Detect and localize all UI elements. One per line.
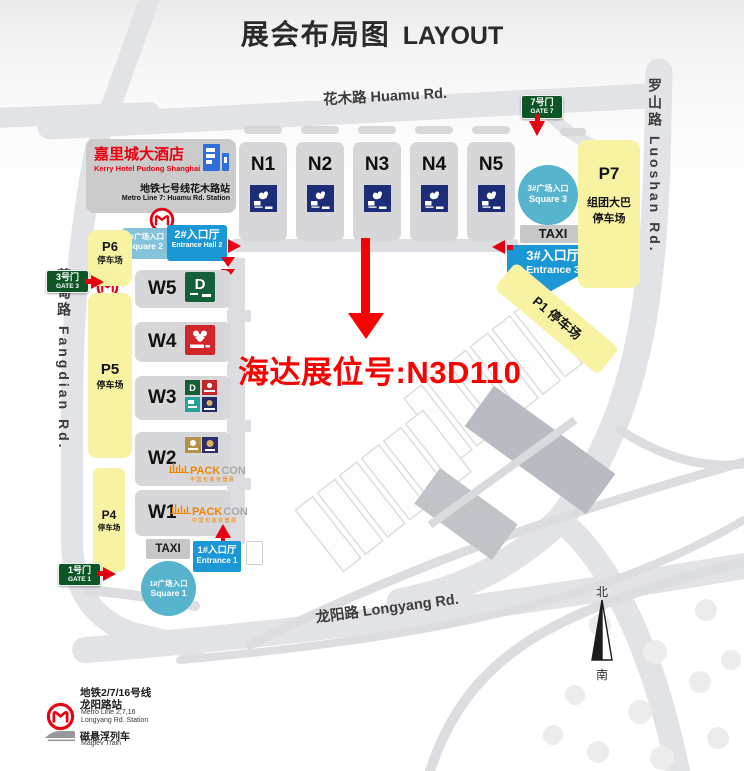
building-icon: [201, 143, 231, 180]
p5-label: P5: [88, 361, 132, 378]
hall-w4-label: W4: [148, 331, 185, 353]
square1-label-en: Square 1: [151, 588, 187, 599]
compass-north-label: 北: [589, 583, 615, 600]
packcon-sub-text: 中国包装容器展: [190, 478, 246, 483]
hall-w3-label: W3: [148, 387, 185, 409]
hotel-card: 嘉里城大酒店 Kerry Hotel Pudong Shanghai 地铁七号线…: [86, 139, 236, 213]
gate-7-arrow-icon: [529, 121, 545, 136]
map-building: [246, 541, 263, 565]
hall-w3: W3 D: [135, 376, 231, 420]
hall-n2-label: N2: [296, 154, 344, 176]
entrance3-arrow-tail: [507, 245, 513, 250]
taxi-north-label: TAXI: [520, 225, 586, 243]
hall-n3: N3: [353, 142, 401, 241]
square1-label-zh: 1#广场入口: [149, 579, 187, 588]
p7-line2: 停车场: [578, 210, 640, 226]
square3-label-en: Square 3: [529, 194, 567, 205]
gate-7-label-zh: 7号门: [522, 98, 562, 108]
gate-3-arrow-icon: [91, 275, 104, 289]
p4-sub: 停车场: [93, 522, 125, 533]
compass-needle-icon: [591, 599, 613, 666]
compass-south-label: 南: [589, 666, 615, 683]
packcon-logo: PACK CON 中国包装容器展: [171, 502, 248, 524]
booth-annotation-arrow-icon: [348, 313, 384, 339]
w4-logo-icon: [185, 325, 215, 360]
gate-7-arrow-tail: [535, 114, 540, 121]
p7-line1: 组团大巴: [578, 194, 640, 210]
packcon-skyline-icon: [169, 461, 189, 477]
booth-annotation-arrow-shaft: [361, 238, 370, 314]
hall-n4: N4: [410, 142, 458, 241]
booth-annotation-text: 海达展位号:N3D110: [238, 347, 521, 392]
hotel-station-zh: 地铁七号线花木路站: [94, 180, 230, 195]
hall-n5-label: N5: [467, 154, 515, 176]
gate-3-label-en: GATE 3: [47, 283, 88, 290]
hall-n5: N5: [467, 142, 515, 241]
road-label-luoshan: 罗山路 Luoshan Rd.: [645, 78, 665, 298]
page-title-en: LAYOUT: [403, 22, 503, 51]
gate-1-sign: 1号门 GATE 1: [58, 563, 101, 586]
w3-logo-grid-icon: D: [185, 380, 217, 417]
expo-logo-icon: [307, 199, 334, 216]
expo-logo-icon: [364, 199, 391, 216]
legend-metro-line-en: Metro Line 2,7,16: [81, 709, 135, 716]
entrance2-arrow-right-icon: [228, 239, 241, 253]
p7-label: P7: [578, 164, 640, 184]
maglev-icon: [44, 729, 76, 748]
packcon-con-text: CON: [221, 466, 245, 477]
entrance-hall-1: 1#入口厅 Entrance 1: [193, 541, 241, 572]
packcon-logo: PACK CON 中国包装容器展: [169, 461, 246, 483]
hall-w4: W4: [135, 322, 231, 362]
hall-n2: N2: [296, 142, 344, 241]
legend-metro-station-en: Longyang Rd. Station: [81, 717, 148, 724]
packcon-pack-text: PACK: [192, 507, 222, 518]
svg-text:D: D: [189, 383, 196, 393]
entrance-hall-2: 2#入口厅 Entrance Hall 2: [167, 225, 227, 261]
hall2-label-zh: 2#入口厅: [167, 229, 227, 242]
road-label-fangdian: 芳甸路 Fangdian Rd.: [54, 268, 74, 588]
gate-1-label-zh: 1号门: [59, 566, 100, 576]
parking-p4: P4 停车场: [93, 468, 125, 572]
entrance-square-1: 1#广场入口 Square 1: [141, 561, 196, 616]
p4-label: P4: [93, 508, 125, 522]
hall-n3-label: N3: [353, 154, 401, 176]
entrance1-arrow-up-icon: [215, 524, 231, 538]
gate-1-arrow-icon: [103, 567, 116, 581]
w2-logo-icons: [185, 437, 246, 458]
svg-text:D: D: [195, 276, 206, 293]
square3-label-zh: 3#广场入口: [528, 184, 569, 194]
gate-1-label-en: GATE 1: [59, 576, 100, 583]
packcon-pack-text: PACK: [190, 466, 220, 477]
layout-map: 展会布局图 LAYOUT 花木路 Huamu Rd. 芳甸路 Fangdian …: [0, 0, 744, 771]
gate-7-sign: 7号门 GATE 7: [521, 95, 563, 119]
packcon-con-text: CON: [223, 507, 247, 518]
packcon-skyline-icon: [171, 502, 191, 518]
p5-sub: 停车场: [88, 378, 132, 391]
hotel-station-en: Metro Line 7: Huamu Rd. Station: [94, 195, 230, 202]
expo-logo-icon: [250, 199, 277, 216]
expo-logo-icon: [478, 199, 505, 216]
page-title-zh: 展会布局图: [241, 13, 391, 53]
hall-w2: W2 PACK CON 中国包装容器展: [135, 432, 231, 486]
hall-w5: W5 D: [135, 270, 231, 308]
hall-n1: N1: [239, 142, 287, 241]
gate-3-sign: 3号门 GATE 3: [46, 270, 89, 293]
legend-maglev-en: Maglev Train: [81, 740, 121, 747]
hall-w5-label: W5: [148, 278, 185, 300]
p6-sub: 停车场: [88, 254, 132, 266]
gate-3-label-zh: 3号门: [47, 273, 88, 283]
p6-label: P6: [88, 239, 132, 254]
hall1-label-en: Entrance 1: [193, 556, 241, 566]
entrance-square-3: 3#广场入口 Square 3: [518, 165, 578, 225]
hall2-label-en: Entrance Hall 2: [167, 242, 227, 250]
gate-7-label-en: GATE 7: [522, 108, 562, 115]
hall-n4-label: N4: [410, 154, 458, 176]
entrance3-arrow-left-icon: [492, 240, 505, 254]
expo-logo-icon: [421, 199, 448, 216]
parking-p7: P7 组团大巴 停车场: [578, 140, 640, 288]
page-title: 展会布局图 LAYOUT: [0, 13, 744, 53]
parking-p5: P5 停车场: [88, 293, 132, 458]
taxi-south-label: TAXI: [146, 539, 190, 559]
hall-n1-label: N1: [239, 154, 287, 176]
w5-logo-icon: D: [185, 272, 215, 307]
hall1-label-zh: 1#入口厅: [193, 545, 241, 556]
entrance2-arrow-down-icon: [221, 257, 235, 267]
